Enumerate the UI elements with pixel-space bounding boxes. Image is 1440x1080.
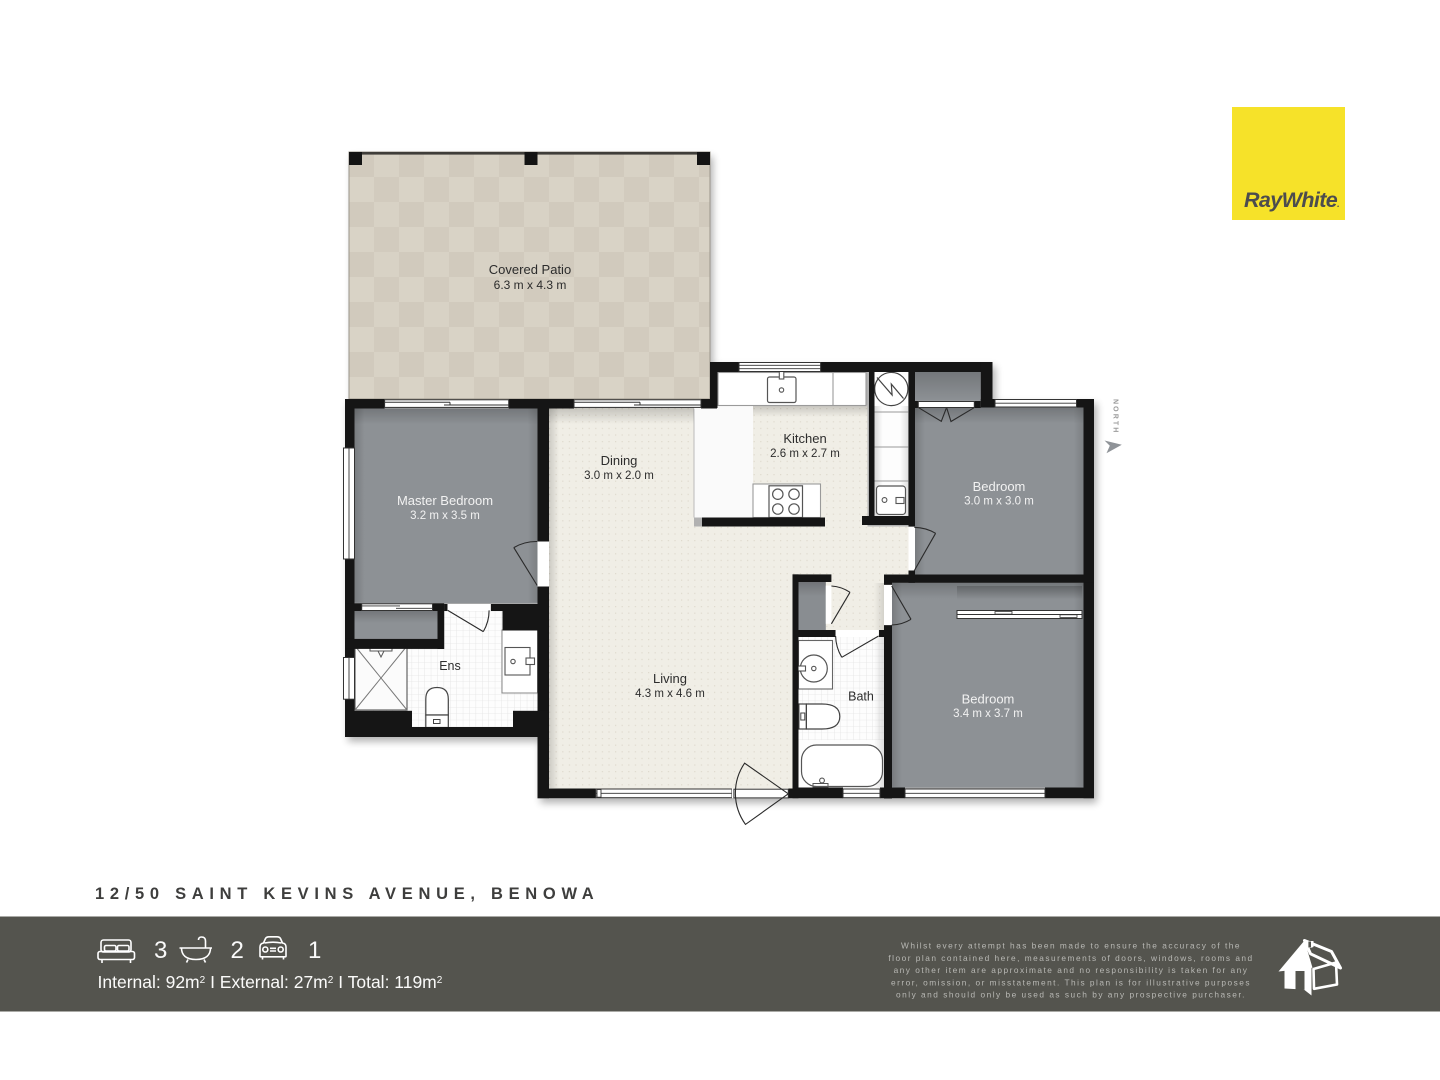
svg-text:Bedroom: Bedroom bbox=[973, 479, 1026, 494]
svg-text:3.0 m x 2.0 m: 3.0 m x 2.0 m bbox=[584, 470, 654, 482]
svg-text:4.3 m x 4.6 m: 4.3 m x 4.6 m bbox=[635, 688, 705, 700]
svg-text:only and should only be used a: only and should only be used as such by … bbox=[896, 990, 1246, 1000]
svg-text:Living: Living bbox=[653, 671, 687, 686]
svg-text:2: 2 bbox=[231, 937, 244, 964]
svg-text:floor plan contained here, mea: floor plan contained here, measurements … bbox=[888, 953, 1253, 963]
svg-text:Kitchen: Kitchen bbox=[783, 431, 826, 446]
svg-text:Bath: Bath bbox=[848, 690, 874, 704]
svg-text:3.2 m x 3.5 m: 3.2 m x 3.5 m bbox=[410, 510, 480, 522]
svg-text:Master Bedroom: Master Bedroom bbox=[397, 493, 493, 508]
svg-text:3.0 m x 3.0 m: 3.0 m x 3.0 m bbox=[964, 496, 1034, 508]
svg-text:Covered Patio: Covered Patio bbox=[489, 262, 571, 277]
svg-text:1: 1 bbox=[308, 937, 321, 964]
svg-text:Bedroom: Bedroom bbox=[962, 692, 1015, 707]
svg-text:error, omission, or misstateme: error, omission, or misstatement. This p… bbox=[891, 977, 1251, 987]
svg-text:NORTH: NORTH bbox=[1112, 399, 1119, 434]
svg-text:any other item are approximate: any other item are approximate and no re… bbox=[894, 965, 1249, 975]
svg-text:Ens: Ens bbox=[439, 659, 461, 673]
svg-text:2.6 m x 2.7 m: 2.6 m x 2.7 m bbox=[770, 448, 840, 460]
svg-text:Whilst every attempt has been: Whilst every attempt has been made to en… bbox=[901, 941, 1241, 951]
svg-text:RayWhite.: RayWhite. bbox=[1244, 188, 1339, 212]
svg-text:12/50 SAINT KEVINS AVENUE, BEN: 12/50 SAINT KEVINS AVENUE, BENOWA bbox=[95, 885, 599, 903]
svg-text:Dining: Dining bbox=[601, 453, 638, 468]
svg-text:3.4 m x 3.7 m: 3.4 m x 3.7 m bbox=[953, 708, 1023, 720]
svg-text:Internal: 92m2 I External: 27m: Internal: 92m2 I External: 27m2 I Total:… bbox=[98, 972, 443, 992]
svg-text:3: 3 bbox=[154, 937, 167, 964]
svg-text:6.3 m x 4.3 m: 6.3 m x 4.3 m bbox=[494, 278, 567, 292]
